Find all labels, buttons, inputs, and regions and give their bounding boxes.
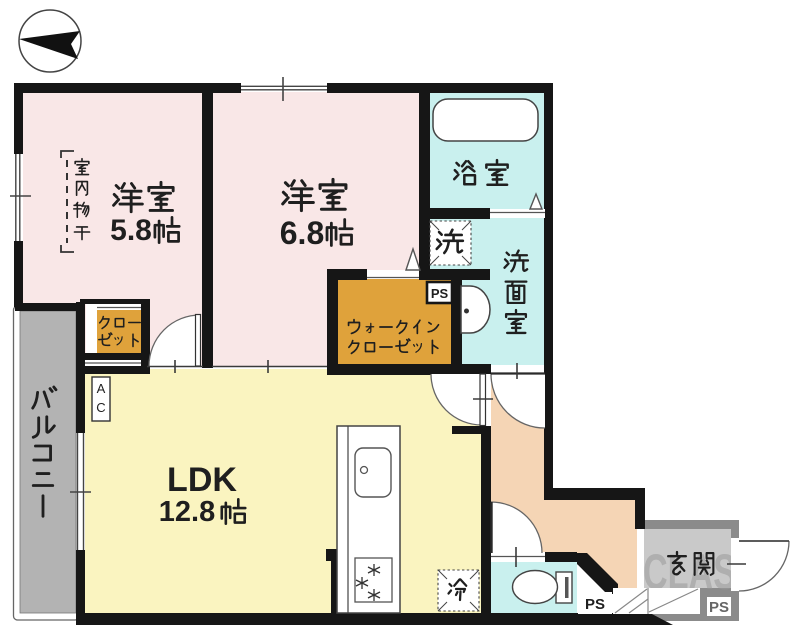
svg-text:LDK: LDK <box>167 461 237 499</box>
svg-text:5.8: 5.8 <box>110 214 152 247</box>
svg-text:C: C <box>96 400 105 415</box>
svg-text:12.8: 12.8 <box>159 496 215 528</box>
svg-text:PS: PS <box>431 286 449 301</box>
svg-text:A: A <box>97 381 106 396</box>
svg-text:PS: PS <box>585 596 605 613</box>
svg-text:PS: PS <box>709 599 729 616</box>
svg-text:6.8: 6.8 <box>280 215 324 251</box>
